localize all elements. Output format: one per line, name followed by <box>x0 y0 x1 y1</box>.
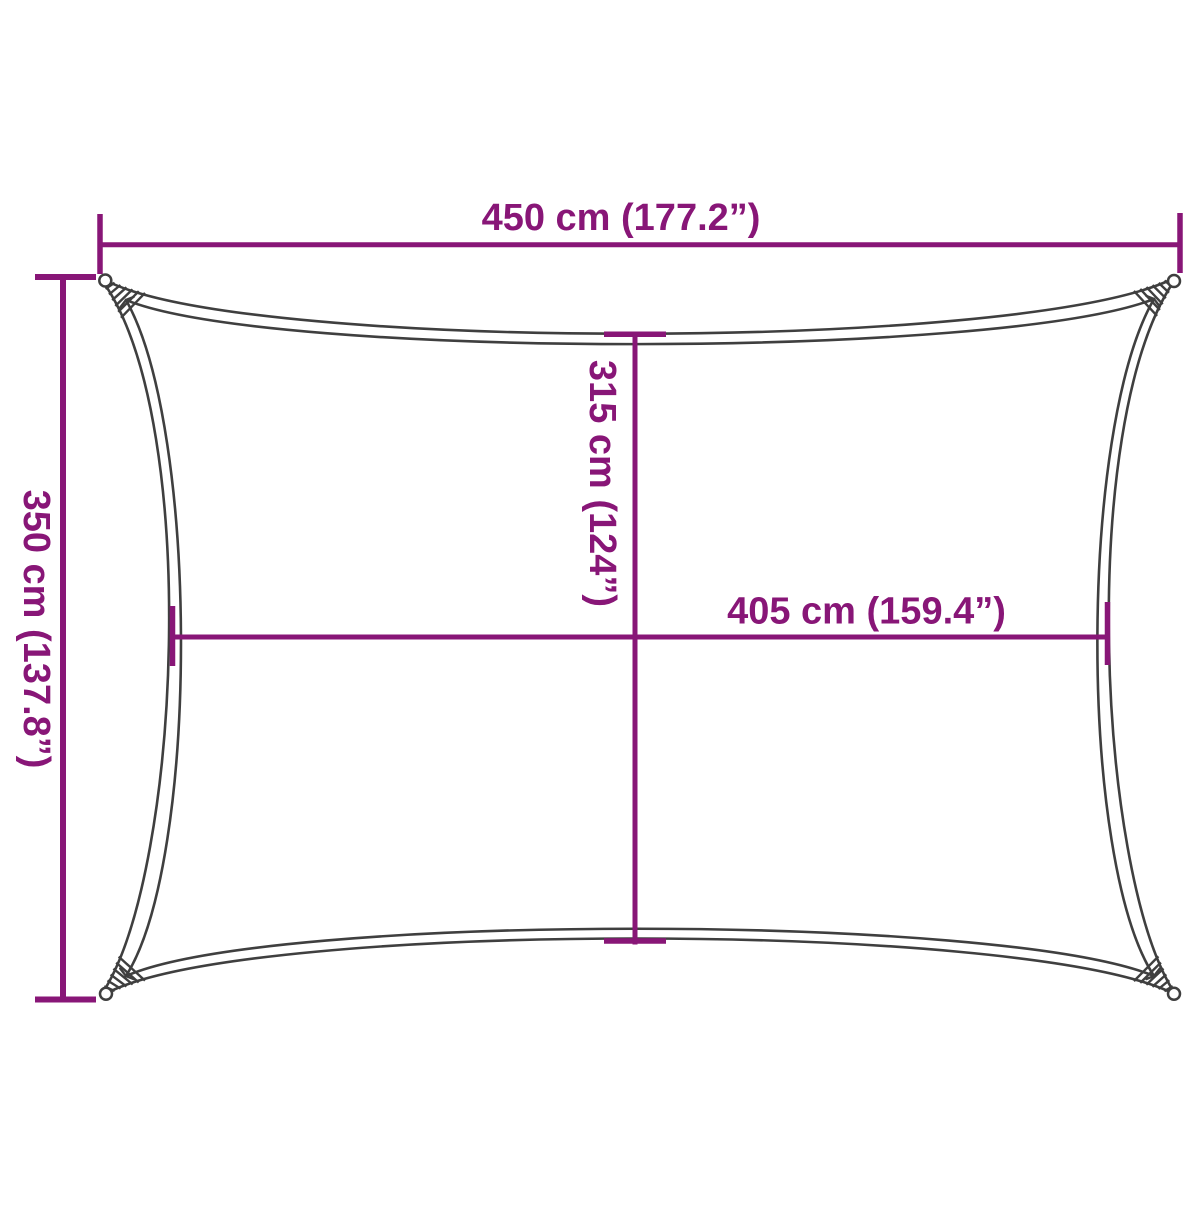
svg-text:450 cm (177.2”): 450 cm (177.2”) <box>482 197 761 239</box>
svg-text:405 cm (159.4”): 405 cm (159.4”) <box>727 591 1006 633</box>
svg-text:315 cm (124”): 315 cm (124”) <box>581 360 623 607</box>
svg-text:350 cm (137.8”): 350 cm (137.8”) <box>15 490 57 769</box>
